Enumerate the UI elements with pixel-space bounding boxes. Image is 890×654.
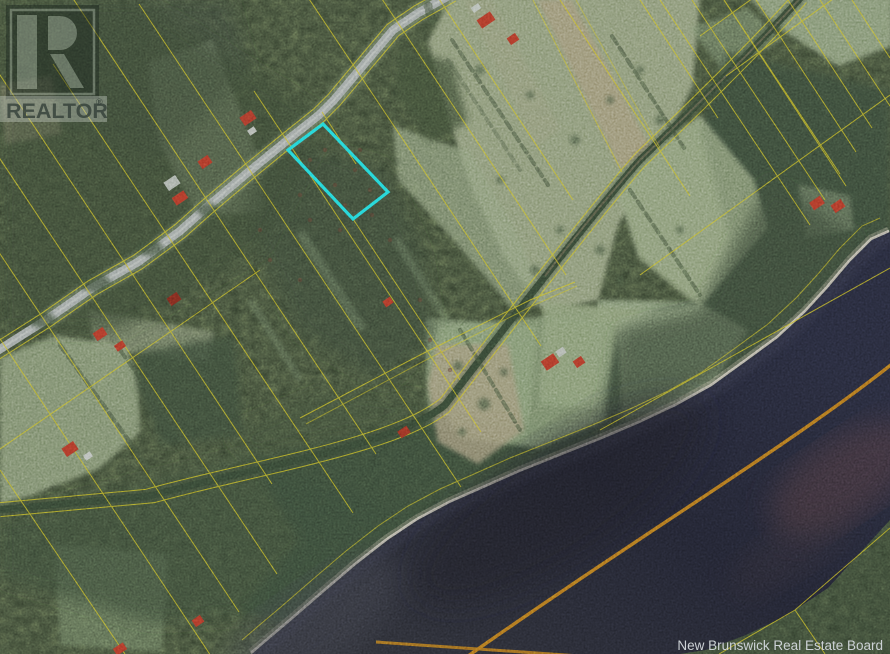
svg-text:REALTOR: REALTOR [6,99,108,123]
svg-text:New Brunswick Real Estate Boar: New Brunswick Real Estate Board [677,638,883,653]
svg-text:®: ® [96,97,103,107]
